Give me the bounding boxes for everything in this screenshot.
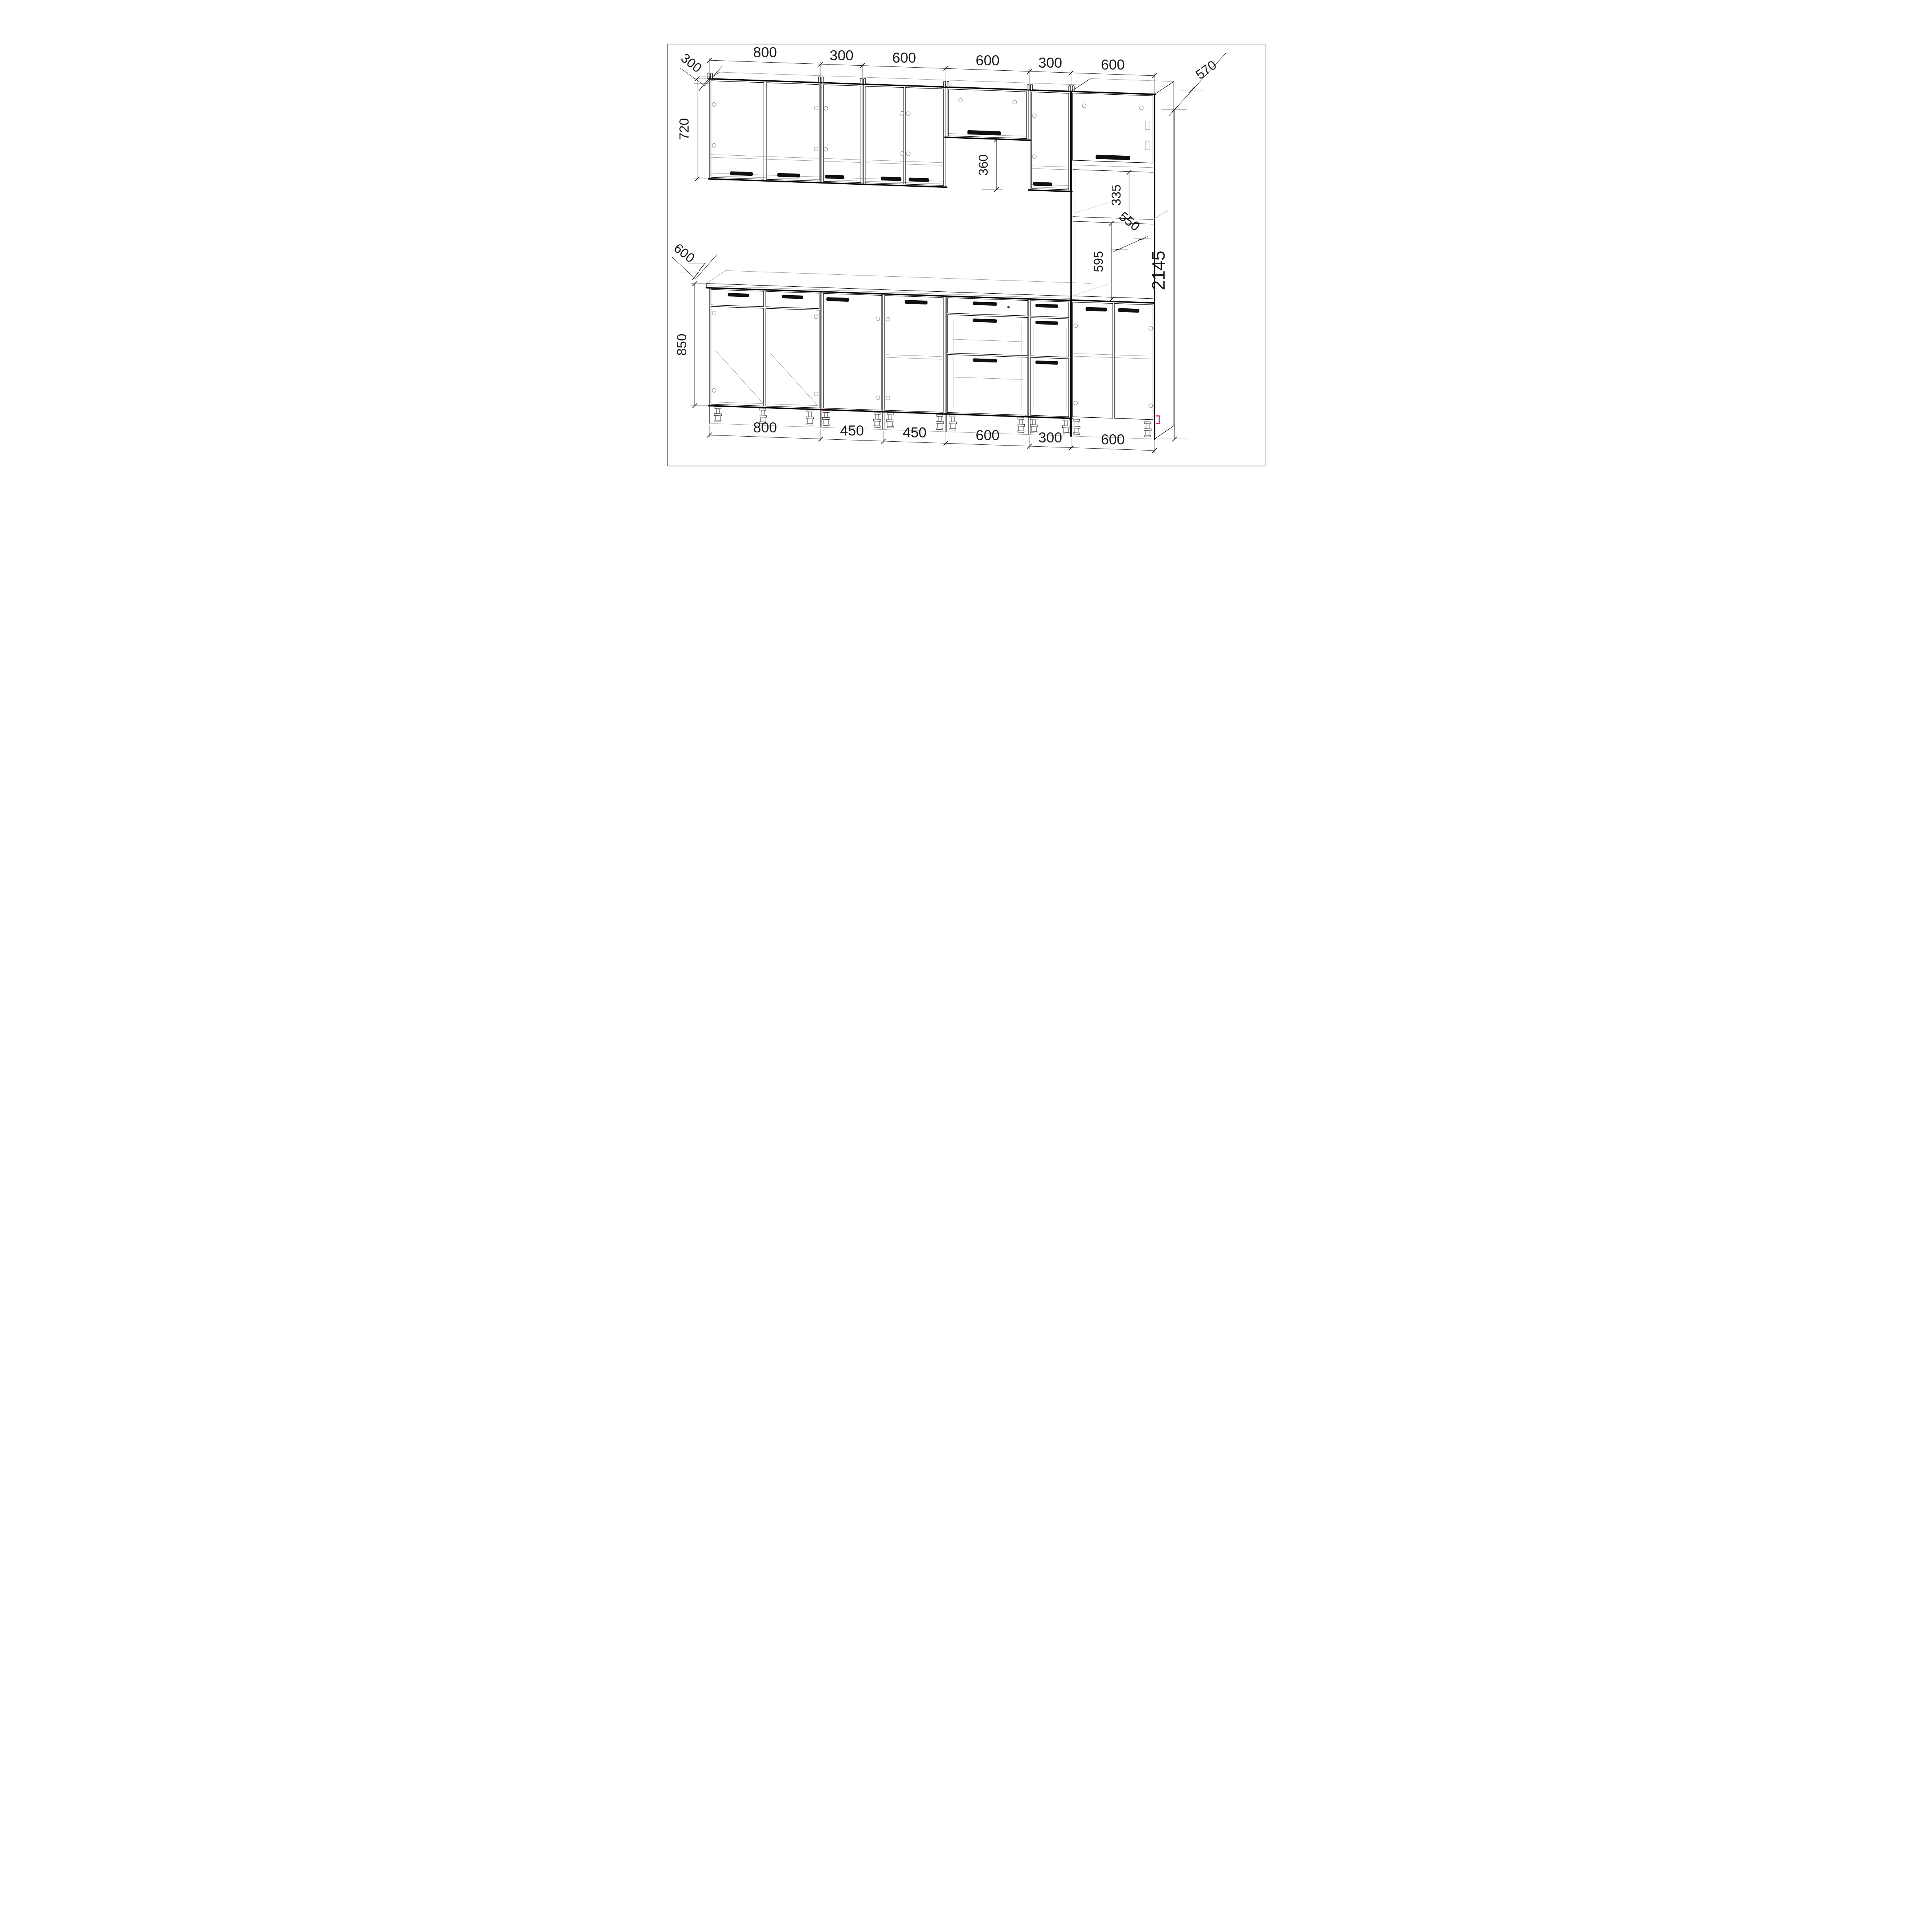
background	[666, 0, 1266, 491]
dim-top-600a: 600	[892, 50, 916, 66]
door-handle	[730, 172, 753, 176]
drawer-handle	[1036, 304, 1058, 308]
dim-bottom-800: 800	[753, 420, 777, 435]
dim-top-300b: 300	[1038, 55, 1062, 71]
dim-oven-niche-label: 595	[1091, 251, 1105, 272]
drawer-handle	[1036, 321, 1058, 325]
dim-total-height-label: 2145	[1148, 251, 1168, 290]
kitchen-drawing: 800 300 600 600 300 600 800 450 450 600 …	[666, 0, 1266, 491]
drawer-handle	[973, 359, 997, 362]
drawer-handle	[782, 295, 803, 299]
dim-top-300: 300	[830, 48, 854, 63]
door-handle	[905, 300, 927, 304]
dim-bottom-450b: 450	[903, 425, 927, 440]
door-handle	[881, 177, 901, 181]
drawer-handle	[728, 293, 749, 297]
dim-bottom-600b: 600	[1101, 432, 1125, 447]
dim-bottom-600a: 600	[976, 427, 1000, 443]
dim-bottom-450a: 450	[840, 423, 864, 439]
dim-top-600c: 600	[1101, 57, 1125, 73]
door-handle	[909, 178, 929, 182]
dim-base-height-label: 850	[675, 334, 689, 356]
dim-opening-label: 335	[1109, 184, 1123, 206]
door-handle	[825, 175, 844, 179]
dim-bottom-300: 300	[1038, 430, 1062, 446]
door-handle	[1033, 182, 1052, 186]
door-handle	[1118, 308, 1139, 313]
drawer-handle	[973, 302, 997, 306]
dim-top-600b: 600	[976, 53, 1000, 68]
dim-top-800: 800	[753, 44, 777, 60]
door-handle	[1086, 307, 1107, 311]
door-handle	[777, 173, 800, 177]
door-handle	[827, 297, 849, 301]
dim-hood-height-label: 360	[976, 154, 990, 175]
drawer-handle	[1036, 361, 1058, 364]
dim-wall-height-label: 720	[677, 118, 692, 140]
drawing-page: 800 300 600 600 300 600 800 450 450 600 …	[666, 0, 1266, 491]
drawer-handle	[973, 319, 997, 323]
